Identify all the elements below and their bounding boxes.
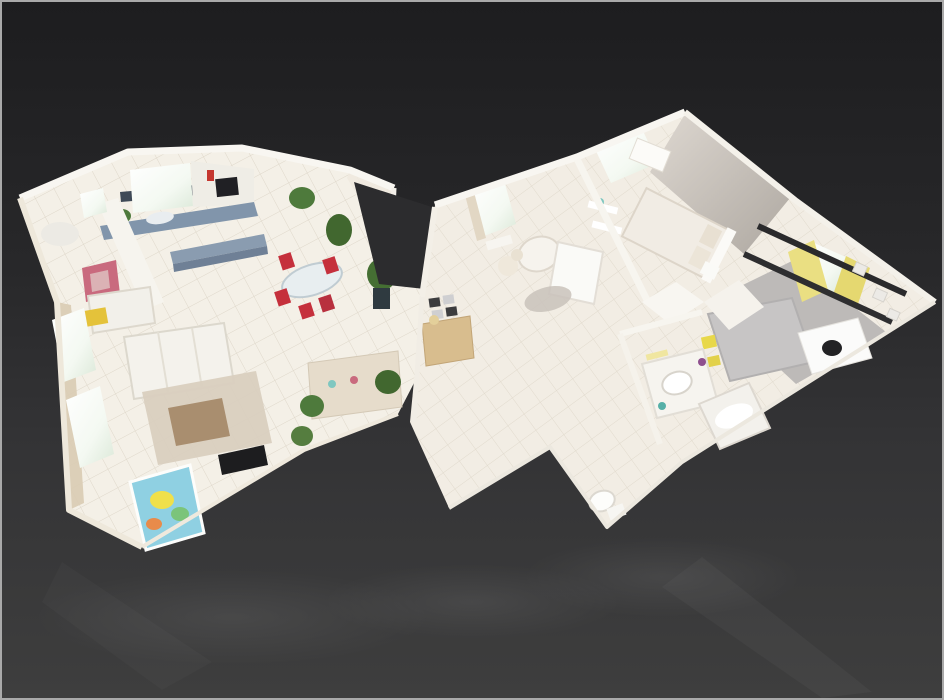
living-plant (291, 426, 313, 446)
red-item (207, 170, 214, 181)
kitchen-window (130, 163, 193, 213)
living-plant (375, 370, 401, 394)
play-mat-pattern (146, 518, 162, 530)
white-fixture (41, 222, 79, 246)
hall-sideboard (422, 316, 474, 366)
living-plant (300, 395, 324, 417)
dining-plant (289, 187, 315, 209)
dining-plant (326, 214, 352, 246)
right-wing-bedroom-area[interactable] (410, 112, 935, 527)
viewer-canvas[interactable] (0, 0, 944, 700)
mirror-tile (442, 294, 454, 304)
mirror-tile (428, 297, 440, 307)
hall-basket (429, 315, 439, 325)
play-mat-pattern (150, 491, 174, 509)
floor-reflections (32, 537, 872, 698)
toiletry-bottle (698, 358, 706, 366)
plant-pot (373, 288, 390, 309)
teddy-bear-head (511, 249, 523, 261)
desk-chair (822, 340, 842, 356)
console-decor (350, 376, 358, 384)
oven-icon (215, 177, 239, 197)
toiletry-bottle (658, 402, 666, 410)
dollhouse-3d-view[interactable] (2, 2, 944, 700)
console-decor (328, 380, 336, 388)
mirror-tile (445, 306, 457, 316)
